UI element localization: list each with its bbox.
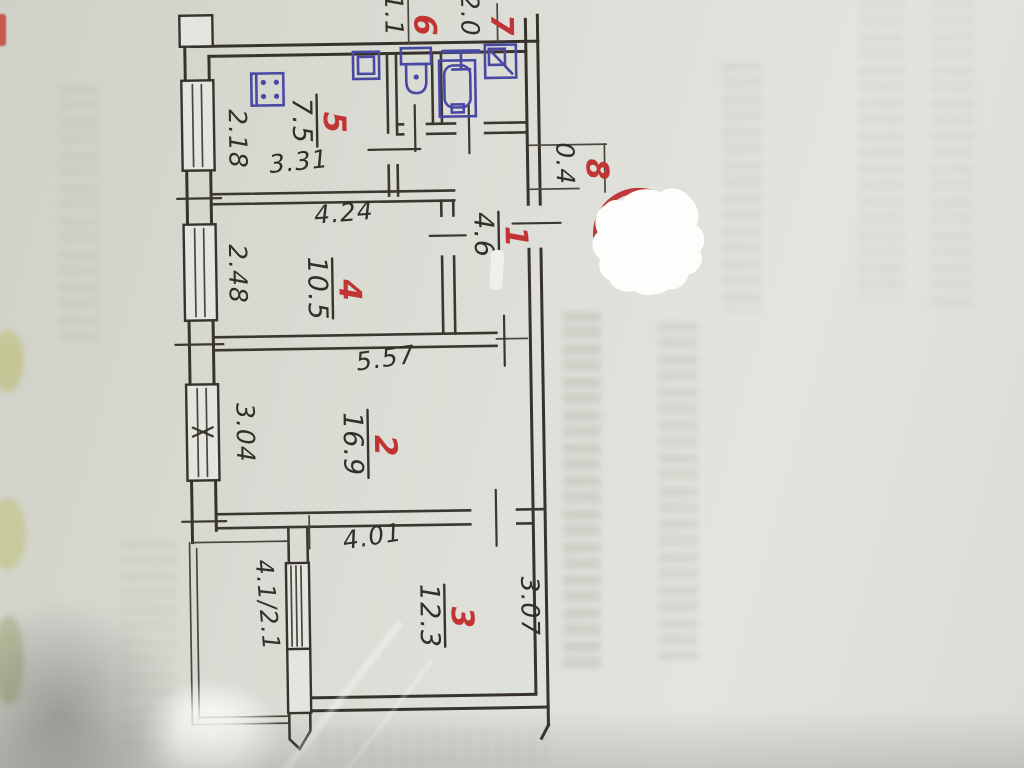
svg-text:2.18: 2.18	[223, 109, 253, 169]
dim-room4-top: 4.24	[313, 196, 375, 230]
correction-streak	[489, 250, 504, 291]
dim-room2-width: 5.57	[354, 340, 417, 377]
svg-text:3.31: 3.31	[268, 144, 330, 179]
photographed-floor-plan: 1 4.6 2 16.9 3 12.3 4 10.5 5	[0, 0, 1024, 768]
dim-kitchen-left: 2.18	[223, 109, 253, 169]
svg-text:4.01: 4.01	[341, 517, 404, 555]
room-area: 12.3	[413, 584, 445, 649]
hall-basin-icon	[485, 45, 517, 78]
room-number: 7	[483, 14, 519, 37]
dim-room2-left: 3.04	[230, 403, 260, 463]
room-area: 0.4	[550, 142, 580, 185]
room-label-7: 7 2.0	[455, 0, 520, 37]
bottom-shadow	[0, 708, 1024, 768]
room-area: 7.5	[286, 98, 318, 144]
svg-text:4.24: 4.24	[313, 196, 375, 230]
interior-walls	[209, 51, 546, 564]
dim-room4-left: 2.48	[223, 244, 253, 304]
room4-window	[184, 224, 218, 320]
room-label-6: 6 1.1	[379, 0, 443, 37]
svg-text:5.57: 5.57	[354, 340, 417, 377]
dim-room3-right: 3.07	[515, 576, 545, 636]
room-area: 16.9	[337, 412, 369, 477]
room-area: 2.0	[455, 0, 485, 37]
room-label-8: 8 0.4	[550, 142, 615, 186]
svg-text:3.07: 3.07	[515, 576, 545, 636]
room-number: 6	[406, 14, 442, 36]
dim-room3-width: 4.01	[341, 517, 404, 555]
dim-kitchen-top: 3.31	[268, 144, 330, 179]
room-label-3: 3 12.3	[413, 583, 480, 648]
svg-text:2.48: 2.48	[223, 244, 253, 304]
room-label-2: 2 16.9	[336, 409, 403, 478]
gas-stove-icon	[251, 73, 283, 105]
room-area: 1.1	[379, 0, 409, 37]
svg-text:4.1/2.1: 4.1/2.1	[250, 558, 286, 651]
room-area: 10.5	[301, 256, 333, 321]
room-label-4: 4 10.5	[301, 256, 368, 321]
kitchen-window	[181, 80, 214, 170]
dim-balcony: 4.1/2.1	[250, 558, 286, 651]
room-number: 3	[444, 606, 480, 628]
window-blocks	[181, 80, 219, 480]
balcony-window	[286, 563, 310, 649]
kitchen-sink-icon	[353, 52, 379, 79]
room-label-5: 5 7.5	[286, 94, 353, 147]
svg-text:3.04: 3.04	[230, 403, 260, 463]
room-number: 5	[316, 111, 352, 133]
room-number: 4	[331, 278, 367, 301]
room-number: 2	[367, 435, 403, 457]
room-number: 8	[579, 158, 615, 180]
room-number: 1	[498, 225, 534, 247]
